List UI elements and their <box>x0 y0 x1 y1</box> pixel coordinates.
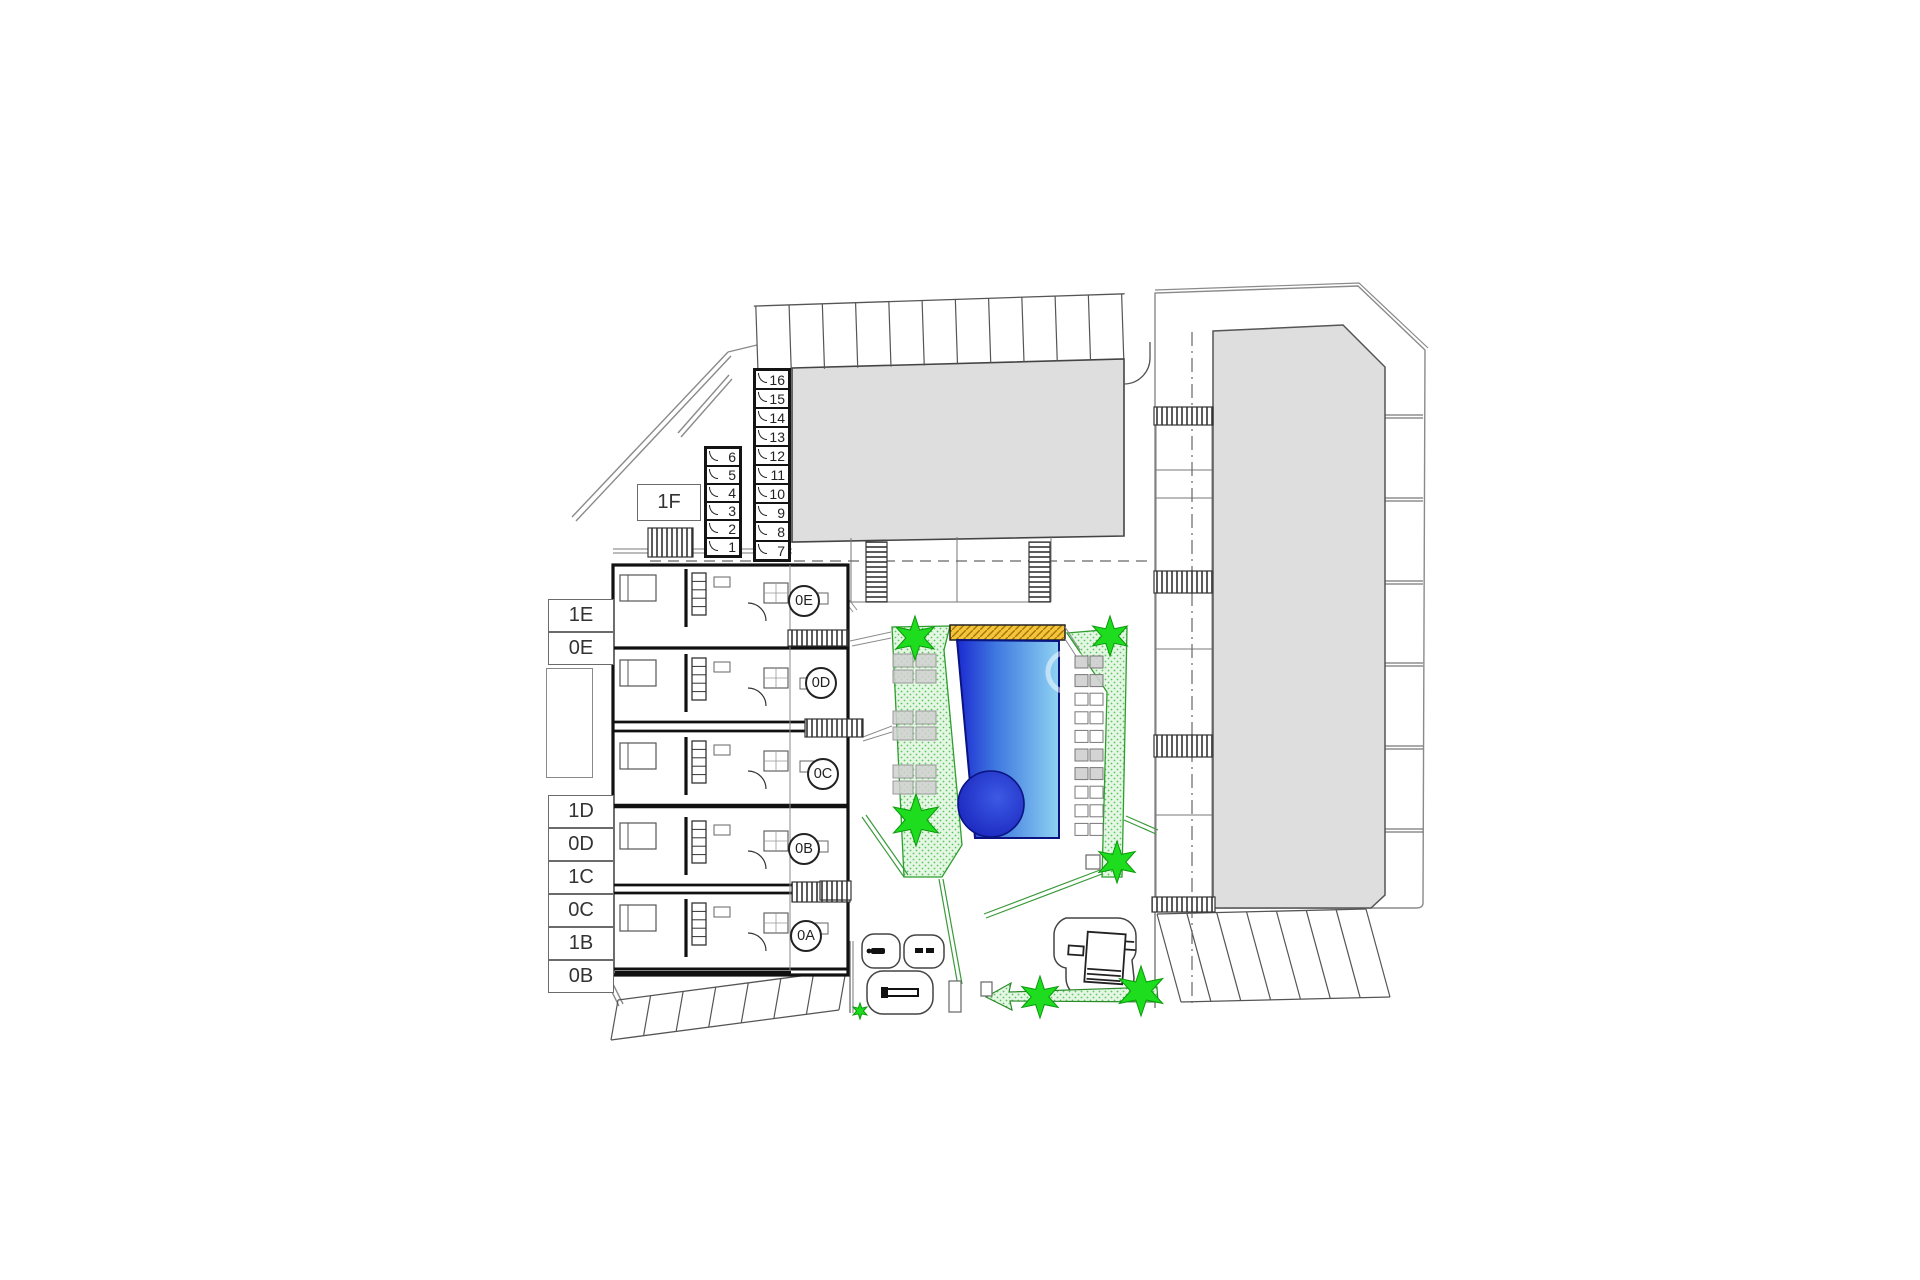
storage-cell-2: 2 <box>707 521 739 537</box>
storage-cell-14: 14 <box>756 409 788 426</box>
storage-cell-9: 9 <box>756 504 788 521</box>
door-arc-icon <box>709 451 718 461</box>
door-arc-icon <box>709 541 718 551</box>
unit-label-0C: 0C <box>548 894 614 927</box>
storage-cell-7: 7 <box>756 542 788 559</box>
entry-arc <box>1124 342 1150 384</box>
courtyard <box>820 567 1127 877</box>
playground <box>850 855 1158 1014</box>
unit-circle-0B: 0B <box>788 833 820 865</box>
door-arc-icon <box>758 411 767 421</box>
unit-circle-0E: 0E <box>788 585 820 617</box>
storage-cell-10: 10 <box>756 485 788 502</box>
door-arc-icon <box>709 469 718 479</box>
storage-cell-8: 8 <box>756 523 788 540</box>
storage-cell-6: 6 <box>707 449 739 465</box>
door-arc-icon <box>758 392 767 402</box>
unit-circle-0D: 0D <box>805 667 837 699</box>
building-east <box>1155 283 1428 908</box>
door-arc-icon <box>758 468 767 478</box>
door-arc-icon <box>758 487 767 497</box>
storage-cell-13: 13 <box>756 428 788 445</box>
unit-circle-0A: 0A <box>790 920 822 952</box>
unit-label-0B: 0B <box>548 960 614 993</box>
sun-deck <box>950 625 1065 640</box>
storage-cell-11: 11 <box>756 466 788 483</box>
pool-bulge <box>958 771 1024 837</box>
unit-label-1F: 1F <box>637 484 701 521</box>
storage-column-right: 16151413121110987 <box>753 368 791 562</box>
storage-column-left: 654321 <box>704 446 742 558</box>
boundary-box <box>546 668 593 778</box>
unit-circle-0C: 0C <box>807 758 839 790</box>
floor-plan-stage: 1F1E0E1D0D1C0C1B0B6543211615141312111098… <box>0 0 1920 1280</box>
door-arc-icon <box>758 373 767 383</box>
unit-label-1C: 1C <box>548 861 614 894</box>
unit-label-1B: 1B <box>548 927 614 960</box>
storage-cell-5: 5 <box>707 467 739 483</box>
unit-label-0D: 0D <box>548 828 614 861</box>
door-arc-icon <box>758 430 767 440</box>
storage-cell-12: 12 <box>756 447 788 464</box>
storage-cell-3: 3 <box>707 503 739 519</box>
storage-cell-16: 16 <box>756 371 788 388</box>
unit-label-1E: 1E <box>548 599 614 632</box>
storage-cell-15: 15 <box>756 390 788 407</box>
site-plan-drawing <box>0 0 1920 1280</box>
door-arc-icon <box>709 487 718 497</box>
unit-label-0E: 0E <box>548 632 614 665</box>
door-arc-icon <box>709 505 718 515</box>
door-arc-icon <box>758 506 767 516</box>
door-arc-icon <box>758 449 767 459</box>
storage-cell-1: 1 <box>707 539 739 555</box>
door-arc-icon <box>709 523 718 533</box>
door-arc-icon <box>758 544 767 554</box>
unit-label-1D: 1D <box>548 795 614 828</box>
storage-cell-4: 4 <box>707 485 739 501</box>
door-arc-icon <box>758 525 767 535</box>
